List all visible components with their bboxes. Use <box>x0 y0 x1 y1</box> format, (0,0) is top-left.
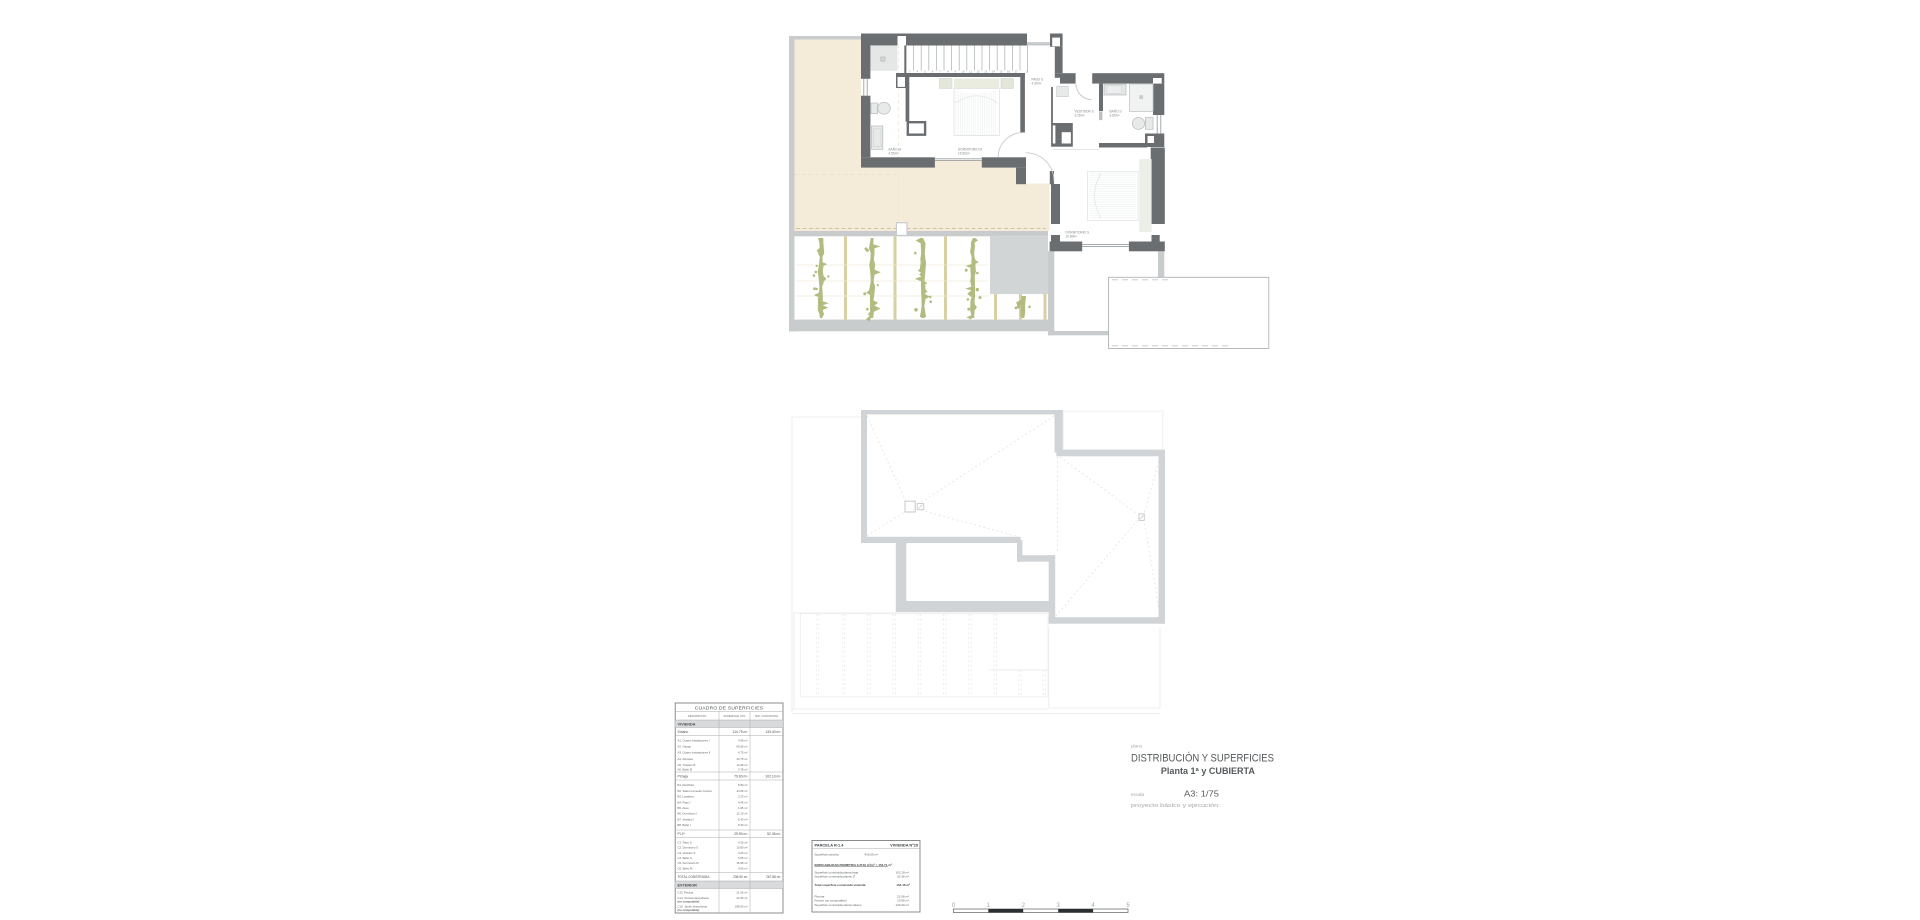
svg-text:SUP. CONSTRUIDA: SUP. CONSTRUIDA <box>755 714 779 718</box>
svg-text:Superficie construida planta 1: Superficie construida planta 1ª <box>815 875 857 879</box>
svg-text:65.56 m²: 65.56 m² <box>736 745 747 749</box>
svg-text:114.75 m²: 114.75 m² <box>732 730 748 734</box>
svg-text:10.80m²: 10.80m² <box>1066 235 1078 239</box>
svg-text:B2. Salón-Comedor-Cocina: B2. Salón-Comedor-Cocina <box>678 789 713 793</box>
svg-text:B1. Recibidor: B1. Recibidor <box>678 783 695 787</box>
svg-text:plano: plano <box>1131 744 1143 749</box>
svg-text:A3. Cuarto Instalaciones II: A3. Cuarto Instalaciones II <box>678 751 711 755</box>
svg-text:CUADRO DE SUPERFICIES: CUADRO DE SUPERFICIES <box>695 705 763 711</box>
svg-text:(no computable): (no computable) <box>678 899 700 903</box>
svg-text:B8. Baño I: B8. Baño I <box>678 823 691 827</box>
svg-text:C6. Baño M: C6. Baño M <box>678 866 693 870</box>
svg-text:21.06 m²: 21.06 m² <box>736 891 747 895</box>
svg-text:23.76 m²: 23.76 m² <box>736 757 747 761</box>
svg-text:C3. Vestidor S: C3. Vestidor S <box>678 851 696 855</box>
svg-text:15.98 m²: 15.98 m² <box>736 861 747 865</box>
svg-text:1.95 m²: 1.95 m² <box>738 806 748 810</box>
svg-text:13.28 m²: 13.28 m² <box>736 763 747 767</box>
svg-text:Planta 1ª y CUBIERTA: Planta 1ª y CUBIERTA <box>1161 766 1255 776</box>
svg-text:8.40 m²: 8.40 m² <box>738 823 748 827</box>
svg-text:5.80 m²: 5.80 m² <box>738 783 748 787</box>
svg-text:TOTAL CONSTRUIDA: TOTAL CONSTRUIDA <box>678 875 711 879</box>
svg-text:4.55 m²: 4.55 m² <box>738 866 748 870</box>
svg-text:Superficie construida planta s: Superficie construida planta sótano <box>815 903 862 907</box>
svg-text:3.65m²: 3.65m² <box>1110 114 1120 118</box>
svg-text:3.26 m²: 3.26 m² <box>738 851 748 855</box>
svg-text:3.65 m²: 3.65 m² <box>738 856 748 860</box>
svg-text:29.90 m²: 29.90 m² <box>734 832 748 836</box>
svg-text:236.90 m²: 236.90 m² <box>733 875 747 879</box>
svg-text:EDIFICABILIDAD PERMITIDA 0.37: EDIFICABILIDAD PERMITIDA 0.3719 m²/m² = … <box>815 863 893 867</box>
svg-text:4.98 m²: 4.98 m² <box>738 739 748 743</box>
svg-text:4.46 m²: 4.46 m² <box>738 800 748 804</box>
svg-text:(no computable): (no computable) <box>678 908 700 912</box>
svg-text:52.36 m²: 52.36 m² <box>897 875 909 879</box>
svg-text:10.80 m²: 10.80 m² <box>736 846 747 850</box>
svg-text:A2. Garaje: A2. Garaje <box>678 745 692 749</box>
svg-text:VIVIENDA Nº29: VIVIENDA Nº29 <box>890 842 919 847</box>
svg-text:4.55m²: 4.55m² <box>889 152 899 156</box>
svg-text:133.40 m²: 133.40 m² <box>895 903 909 907</box>
svg-text:Superficie parcela: Superficie parcela <box>815 853 839 857</box>
svg-text:C1. Paso S: C1. Paso S <box>678 840 692 844</box>
svg-text:133.40 m²: 133.40 m² <box>765 730 781 734</box>
svg-text:A3: 1/75: A3: 1/75 <box>1184 788 1219 798</box>
svg-text:C2. Dormitorio S: C2. Dormitorio S <box>678 846 699 850</box>
svg-text:52.36 m²: 52.36 m² <box>767 832 781 836</box>
svg-text:154.46 m²: 154.46 m² <box>896 883 910 887</box>
svg-text:A4. Almacén: A4. Almacén <box>678 757 694 761</box>
svg-text:4.30 m²: 4.30 m² <box>738 840 748 844</box>
svg-text:11.20 m²: 11.20 m² <box>737 812 748 816</box>
svg-text:PARCELA R-1.4: PARCELA R-1.4 <box>815 842 845 847</box>
svg-text:B6. Dormitorio I: B6. Dormitorio I <box>678 812 698 816</box>
svg-text:4.75 m²: 4.75 m² <box>738 751 748 755</box>
svg-text:proyecto básico y ejecución:: proyecto básico y ejecución: <box>1131 803 1220 809</box>
svg-text:B5. Aseo: B5. Aseo <box>678 806 690 810</box>
svg-text:79.60 m²: 79.60 m² <box>734 774 748 778</box>
svg-text:Sótano: Sótano <box>678 730 689 734</box>
svg-text:C13. Piscina: C13. Piscina <box>678 891 694 895</box>
svg-text:15.86m²: 15.86m² <box>958 152 970 156</box>
svg-text:102.10 m²: 102.10 m² <box>765 774 781 778</box>
svg-text:C5. Dormitorio M: C5. Dormitorio M <box>678 861 700 865</box>
svg-text:5.40 m²: 5.40 m² <box>738 817 748 821</box>
svg-text:EXTERIOR: EXTERIOR <box>678 884 698 888</box>
svg-text:escala: escala <box>1131 792 1145 797</box>
svg-text:C4. Baño S: C4. Baño S <box>678 856 692 860</box>
svg-text:B7. Vestidor I: B7. Vestidor I <box>678 817 695 821</box>
svg-text:22.95 m²: 22.95 m² <box>736 896 747 900</box>
svg-text:Pl.baja: Pl.baja <box>678 774 688 778</box>
svg-text:3.78 m²: 3.78 m² <box>738 768 748 772</box>
svg-text:267.86 m²: 267.86 m² <box>766 875 780 879</box>
svg-text:VIVIENDA: VIVIENDA <box>678 722 696 726</box>
svg-text:44.06 m²: 44.06 m² <box>736 789 747 793</box>
svg-text:Pl.1ª: Pl.1ª <box>678 832 686 836</box>
svg-text:Total superficie construida vi: Total superficie construida vivienda <box>815 883 866 887</box>
svg-text:4.30m²: 4.30m² <box>1032 82 1042 86</box>
svg-text:B3. Lavadero: B3. Lavadero <box>678 795 695 799</box>
svg-text:2.23 m²: 2.23 m² <box>738 795 748 799</box>
svg-text:DISTRIBUCIÓN Y SUPERFICIES: DISTRIBUCIÓN Y SUPERFICIES <box>1131 751 1274 764</box>
svg-text:A5. Trastero B: A5. Trastero B <box>678 763 696 767</box>
svg-text:188.05 m²: 188.05 m² <box>735 905 748 909</box>
svg-text:3.26m²: 3.26m² <box>1075 114 1085 118</box>
svg-text:A1. Cuarto Instalaciones I: A1. Cuarto Instalaciones I <box>678 739 710 743</box>
svg-text:A6. Baño M: A6. Baño M <box>678 768 693 772</box>
svg-text:416.00 m²: 416.00 m² <box>865 853 879 857</box>
svg-text:B4. Paso I: B4. Paso I <box>678 800 691 804</box>
